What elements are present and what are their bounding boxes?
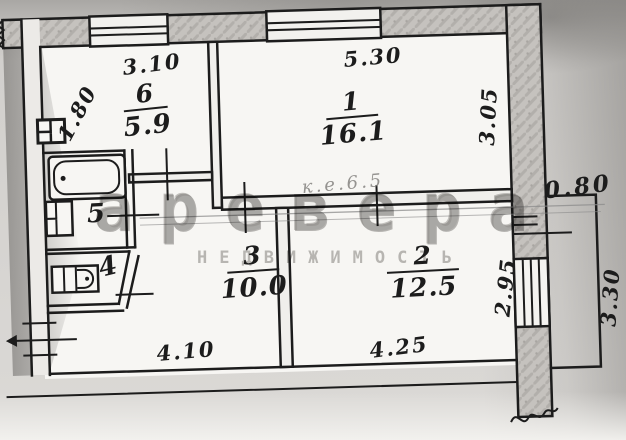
- room-area: 12.5: [387, 273, 460, 303]
- dimension-room1-depth: 3.05: [474, 86, 502, 146]
- room-number: 2: [386, 241, 459, 270]
- room-number: 5: [86, 201, 105, 228]
- room-number: 3: [217, 241, 286, 271]
- room-label-2: 2 12.5: [386, 241, 461, 303]
- room-area: 10.0: [220, 273, 289, 304]
- dimension-room1-width: 5.30: [342, 42, 403, 72]
- window-top-left: [89, 14, 168, 46]
- room-label-1: 1 16.1: [316, 86, 388, 150]
- room-area: 16.1: [319, 118, 388, 150]
- dimension-balcony-length: 3.30: [595, 267, 624, 328]
- sink-icon: [52, 265, 99, 292]
- window-top-right: [266, 8, 381, 41]
- room-label-5: 5: [86, 201, 105, 228]
- room-number: 1: [316, 86, 385, 117]
- dimension-bottom-left: 4.10: [155, 336, 216, 366]
- room-number: 6: [119, 79, 170, 109]
- floorplan-scan: аревера недвижимость 6 5.9 1 16.1 3 10.0…: [0, 0, 626, 440]
- toilet-icon: [46, 201, 73, 236]
- room-label-3: 3 10.0: [217, 241, 288, 304]
- room-label-6: 6 5.9: [119, 79, 173, 142]
- room-area: 5.9: [122, 110, 173, 141]
